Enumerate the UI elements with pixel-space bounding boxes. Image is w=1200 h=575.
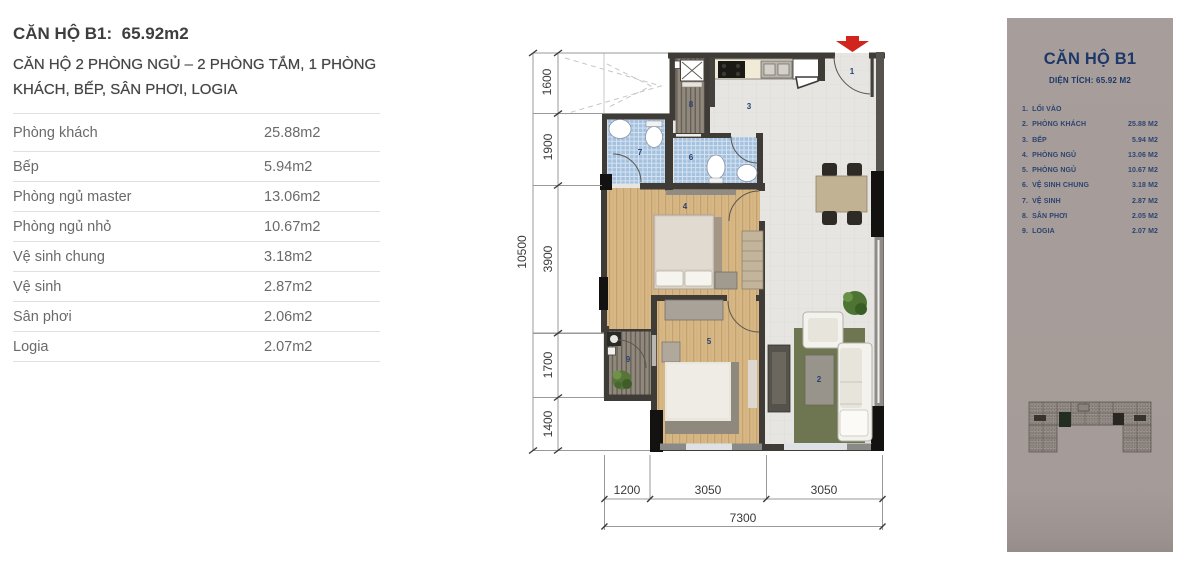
svg-text:3050: 3050 <box>811 483 838 497</box>
svg-text:1200: 1200 <box>614 483 641 497</box>
svg-text:1900: 1900 <box>541 133 555 160</box>
svg-text:3050: 3050 <box>695 483 722 497</box>
svg-text:3: 3 <box>747 102 752 111</box>
svg-text:7: 7 <box>638 148 643 157</box>
svg-text:6: 6 <box>689 153 694 162</box>
svg-text:10500: 10500 <box>515 235 529 269</box>
svg-text:1600: 1600 <box>540 68 554 95</box>
svg-text:9: 9 <box>626 355 631 364</box>
svg-text:1700: 1700 <box>541 351 555 378</box>
svg-text:1400: 1400 <box>541 410 555 437</box>
svg-text:3900: 3900 <box>541 245 555 272</box>
svg-text:2: 2 <box>817 375 822 384</box>
svg-text:8: 8 <box>689 100 694 109</box>
svg-text:1: 1 <box>850 67 855 76</box>
svg-text:4: 4 <box>683 202 688 211</box>
svg-text:7300: 7300 <box>730 511 757 525</box>
svg-text:5: 5 <box>707 337 712 346</box>
